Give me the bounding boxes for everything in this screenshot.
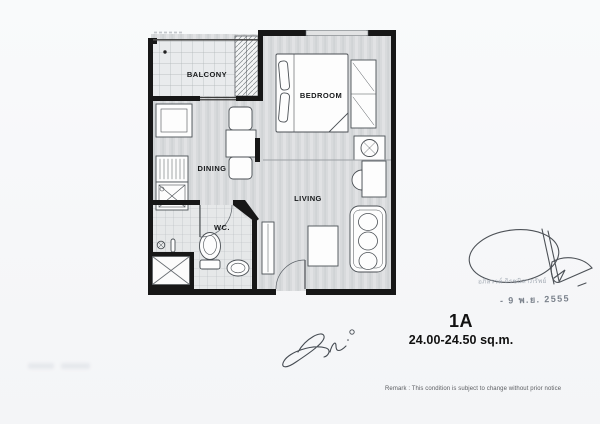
signer-name-stamp: อภิสรรค์ ถิรชนิลาภรัพย์ [478, 275, 598, 286]
fridge-icon [156, 104, 192, 137]
tv-cabinet-icon [262, 222, 274, 274]
toilet-icon [200, 233, 221, 270]
bleedthrough-smudge [28, 363, 54, 369]
room-label-bedroom: BEDROOM [292, 91, 350, 100]
shaft-icon [148, 252, 194, 289]
closet-icon [351, 60, 376, 128]
balcony-railing [153, 39, 258, 41]
kitchen-counter-icon [156, 156, 188, 182]
floorplan: BALCONY BEDROOM DINING LIVING WC. [148, 30, 396, 295]
unit-area: 24.00-24.50 sq.m. [395, 333, 527, 347]
unit-title-block: 1A 24.00-24.50 sq.m. [395, 312, 527, 347]
unit-code: 1A [395, 312, 527, 331]
coffee-table-icon [308, 226, 338, 266]
scanned-floorplan-sheet: BALCONY BEDROOM DINING LIVING WC. 1A 24.… [0, 0, 600, 424]
desk-icon [362, 161, 386, 197]
room-label-dining: DINING [192, 164, 232, 173]
wardrobe-icon [235, 36, 258, 96]
room-label-wc: WC. [210, 223, 234, 232]
initials-icon [268, 320, 368, 375]
room-label-balcony: BALCONY [178, 70, 236, 79]
wash-basin-icon [227, 260, 249, 276]
bleedthrough-smudge [61, 363, 90, 369]
dining-chair-icon [229, 107, 252, 130]
remark-text: Remark : This condition is subject to ch… [385, 386, 575, 392]
balcony-drain [163, 50, 166, 53]
bedside-unit-icon [354, 136, 385, 160]
dining-chair-icon [229, 157, 252, 179]
bedroom-window [306, 30, 368, 35]
sofa-icon [350, 206, 386, 272]
kitchen-sink-icon [156, 182, 188, 210]
room-label-living: LIVING [286, 194, 330, 203]
date-stamp: - 9 พ.ย. 2555 [500, 290, 600, 307]
